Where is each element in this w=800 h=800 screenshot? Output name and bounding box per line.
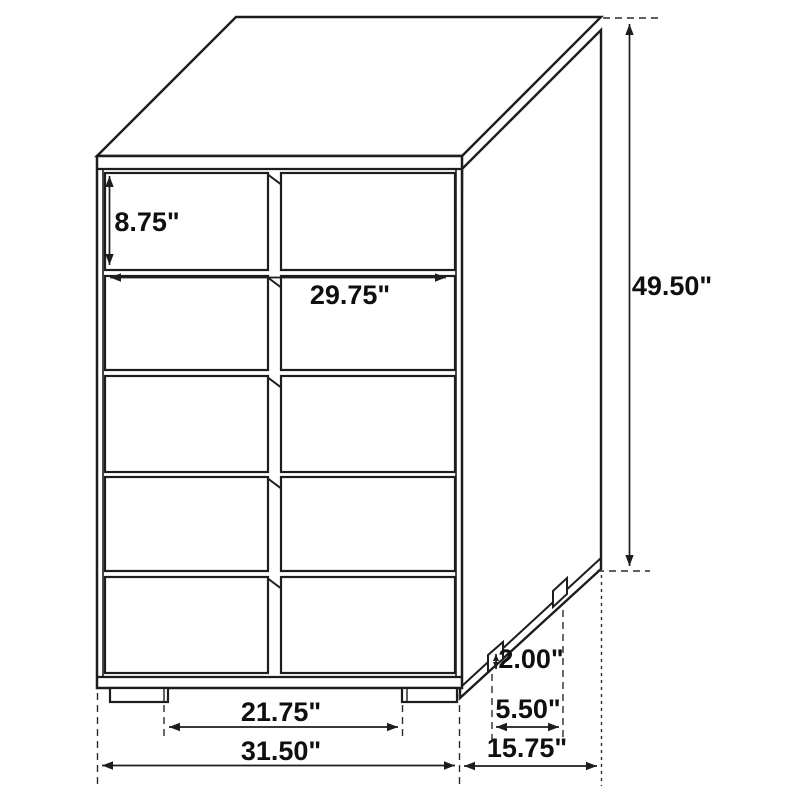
dim-overall-height: 49.50" [597, 18, 712, 571]
drawer-grid [105, 173, 455, 673]
dim-drawer-width-label: 29.75" [310, 280, 390, 310]
drawer-front [105, 477, 268, 571]
drawer-front [281, 376, 455, 472]
drawer-front [105, 376, 268, 472]
dim-front-leg-span-label: 21.75" [241, 697, 321, 727]
dim-overall-width-label: 31.50" [241, 736, 321, 766]
dim-side-leg-spacing-label: 5.50" [495, 694, 560, 724]
dim-front-leg-span: 21.75" [164, 697, 403, 739]
drawer-front [281, 173, 455, 270]
drawer-front [105, 276, 268, 370]
chest-dimension-diagram: 8.75" 29.75" 49.50" 2.00" 5.50" 21.75" 3… [0, 0, 800, 800]
front-leg-left [110, 688, 168, 702]
chest-outline [97, 17, 601, 702]
drawer-front [105, 577, 268, 673]
drawer-front [281, 477, 455, 571]
dimension-diagram-page: 8.75" 29.75" 49.50" 2.00" 5.50" 21.75" 3… [0, 0, 800, 800]
front-leg-right [402, 688, 457, 702]
dim-leg-height-label: 2.00" [498, 644, 563, 674]
dim-top-drawer-height-label: 8.75" [114, 207, 179, 237]
dim-overall-depth-label: 15.75" [487, 733, 567, 763]
dim-overall-height-label: 49.50" [632, 271, 712, 301]
dim-leg-height: 2.00" [496, 644, 564, 674]
drawer-front [281, 577, 455, 673]
